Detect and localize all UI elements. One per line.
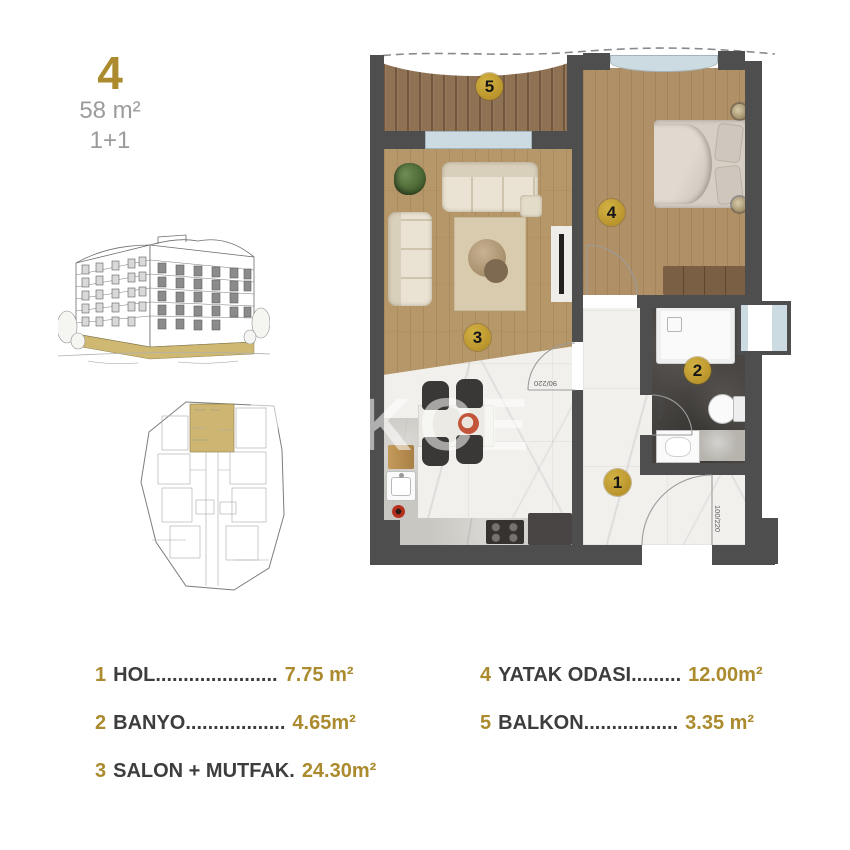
legend-value: 7.75 m² [285,664,354,686]
kitchen-sink [386,471,416,501]
tv [559,234,564,294]
badge-label: 4 [607,203,616,223]
wall [640,435,652,475]
badge-label: 2 [693,361,702,381]
stove [486,520,524,544]
dim-label-bathroom-door: 90/220 [656,397,665,420]
balcony-deck [383,60,567,132]
wall [572,308,583,342]
bathroom-sink [656,430,700,463]
balcony-curve [383,60,567,76]
wardrobe [663,266,748,295]
room-badge-hall: 1 [604,469,631,496]
dim-label-bedroom-door: 90/220 [575,257,584,280]
wall [370,520,400,564]
unit-type: 1+1 [55,126,165,156]
unit-title-block: 4 58 m² 1+1 [55,50,165,156]
wall [745,518,778,564]
sofa-ottoman [520,195,542,217]
wall [583,53,610,70]
wall [370,545,642,565]
unit-number: 4 [55,50,165,96]
legend-label: BALKON................. [498,712,678,734]
wall [652,463,762,475]
light-shaft [737,301,791,355]
room-badge-bathroom: 2 [684,357,711,384]
wall [718,51,745,70]
legend-item-balkon: 5BALKON.................3.35 m² [480,712,754,735]
legend-num: 2 [95,712,106,734]
watermark: TEKCE [250,382,536,467]
decor-bowl [392,505,405,518]
room-badge-bedroom: 4 [598,199,625,226]
legend-num: 3 [95,760,106,782]
duvet [654,124,712,204]
toilet [708,394,744,422]
legend-label: HOL...................... [113,664,277,686]
legend-item-banyo: 2BANYO..................4.65m² [95,712,356,735]
room-badge-balcony: 5 [476,73,503,100]
legend-num: 5 [480,712,491,734]
legend-item-hol: 1HOL......................7.75 m² [95,664,354,687]
dim-label-living-door: 90/220 [534,379,557,388]
bed [654,120,748,208]
kitchen-appliance [528,513,572,545]
building-sketch [58,215,270,385]
badge-label: 3 [473,328,482,348]
legend-value: 4.65m² [292,712,355,734]
living-room-window [425,131,532,149]
legend-value: 12.00m² [688,664,763,686]
legend-label: BANYO.................. [113,712,285,734]
badge-label: 1 [613,473,622,493]
wall [572,390,583,545]
bathroom-cabinet [700,430,745,461]
wall [370,55,384,547]
side-table [484,259,508,283]
unit-area: 58 m² [55,96,165,126]
legend-value: 24.30m² [302,760,377,782]
wall [384,131,425,149]
legend-label: YATAK ODASI......... [498,664,681,686]
pillow [714,123,744,164]
badge-label: 5 [485,77,494,97]
room-badge-living: 3 [464,324,491,351]
legend-item-salon-mutfak: 3SALON + MUTFAK.24.30m² [95,760,376,783]
sofa-chaise [388,212,432,306]
legend-item-yatak-odasi: 4YATAK ODASI.........12.00m² [480,664,763,687]
legend-label: SALON + MUTFAK. [113,760,295,782]
floorplan: 90/220 90/220 90/220 100/220 1 2 3 4 5 [370,45,775,570]
wall [640,308,652,395]
legend-num: 1 [95,664,106,686]
shower-drain [667,317,682,332]
dim-label-entrance-door: 100/220 [713,505,722,532]
legend-num: 4 [480,664,491,686]
legend-value: 3.35 m² [685,712,754,734]
shower-tray [656,306,735,364]
